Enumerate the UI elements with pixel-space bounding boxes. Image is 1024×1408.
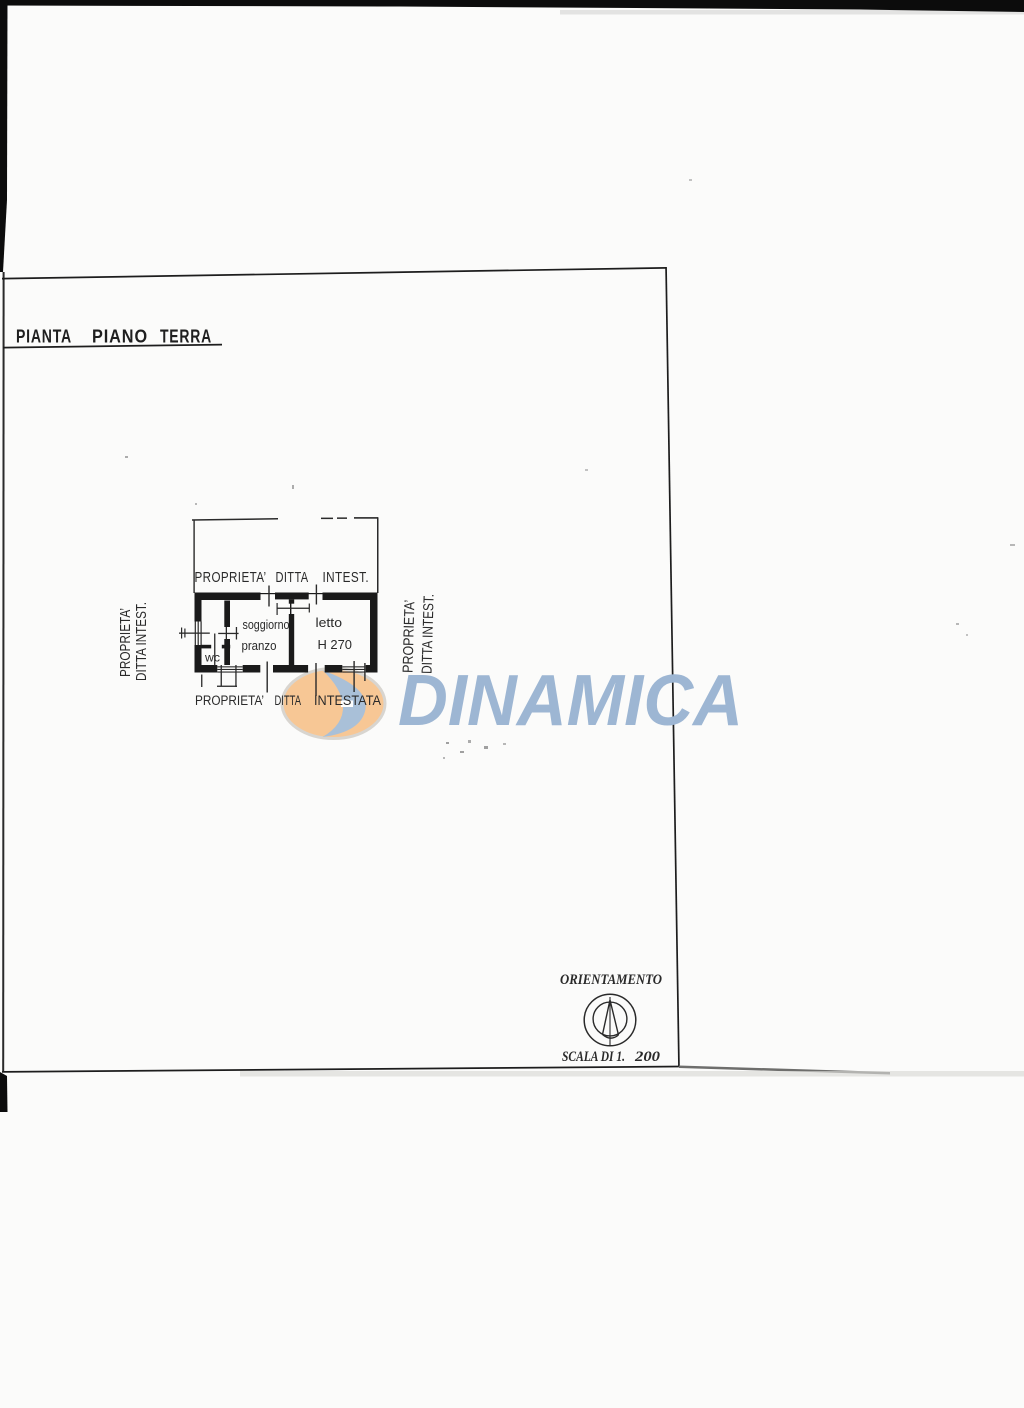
svg-text:PROPRIETA’: PROPRIETA’ <box>118 608 134 677</box>
svg-text:SCALA DI 1.: SCALA DI 1. <box>562 1049 625 1065</box>
svg-text:PIANTA: PIANTA <box>16 327 72 347</box>
svg-text:DITTA: DITTA <box>276 570 309 586</box>
svg-text:PIANO: PIANO <box>92 327 148 347</box>
svg-text:DITTA: DITTA <box>275 693 302 708</box>
svg-text:DITTA INTEST.: DITTA INTEST. <box>420 594 438 674</box>
svg-text:ORIENTAMENTO: ORIENTAMENTO <box>560 972 662 988</box>
svg-text:wc: wc <box>204 651 220 665</box>
svg-text:200: 200 <box>634 1049 661 1065</box>
svg-text:INTEST.: INTEST. <box>323 570 370 586</box>
svg-text:PROPRIETA’: PROPRIETA’ <box>401 600 419 673</box>
svg-text:PROPRIETA’: PROPRIETA’ <box>195 570 267 586</box>
svg-text:DINAMICA: DINAMICA <box>398 661 743 741</box>
svg-text:letto: letto <box>316 615 343 630</box>
svg-text:DITTA INTEST.: DITTA INTEST. <box>134 602 150 681</box>
svg-text:TERRA: TERRA <box>160 327 212 347</box>
svg-text:soggiorno: soggiorno <box>243 617 290 632</box>
svg-text:pranzo: pranzo <box>242 638 277 653</box>
svg-text:INTESTATA: INTESTATA <box>314 693 381 708</box>
svg-text:H 270: H 270 <box>318 637 353 652</box>
svg-text:PROPRIETA’: PROPRIETA’ <box>195 693 264 708</box>
